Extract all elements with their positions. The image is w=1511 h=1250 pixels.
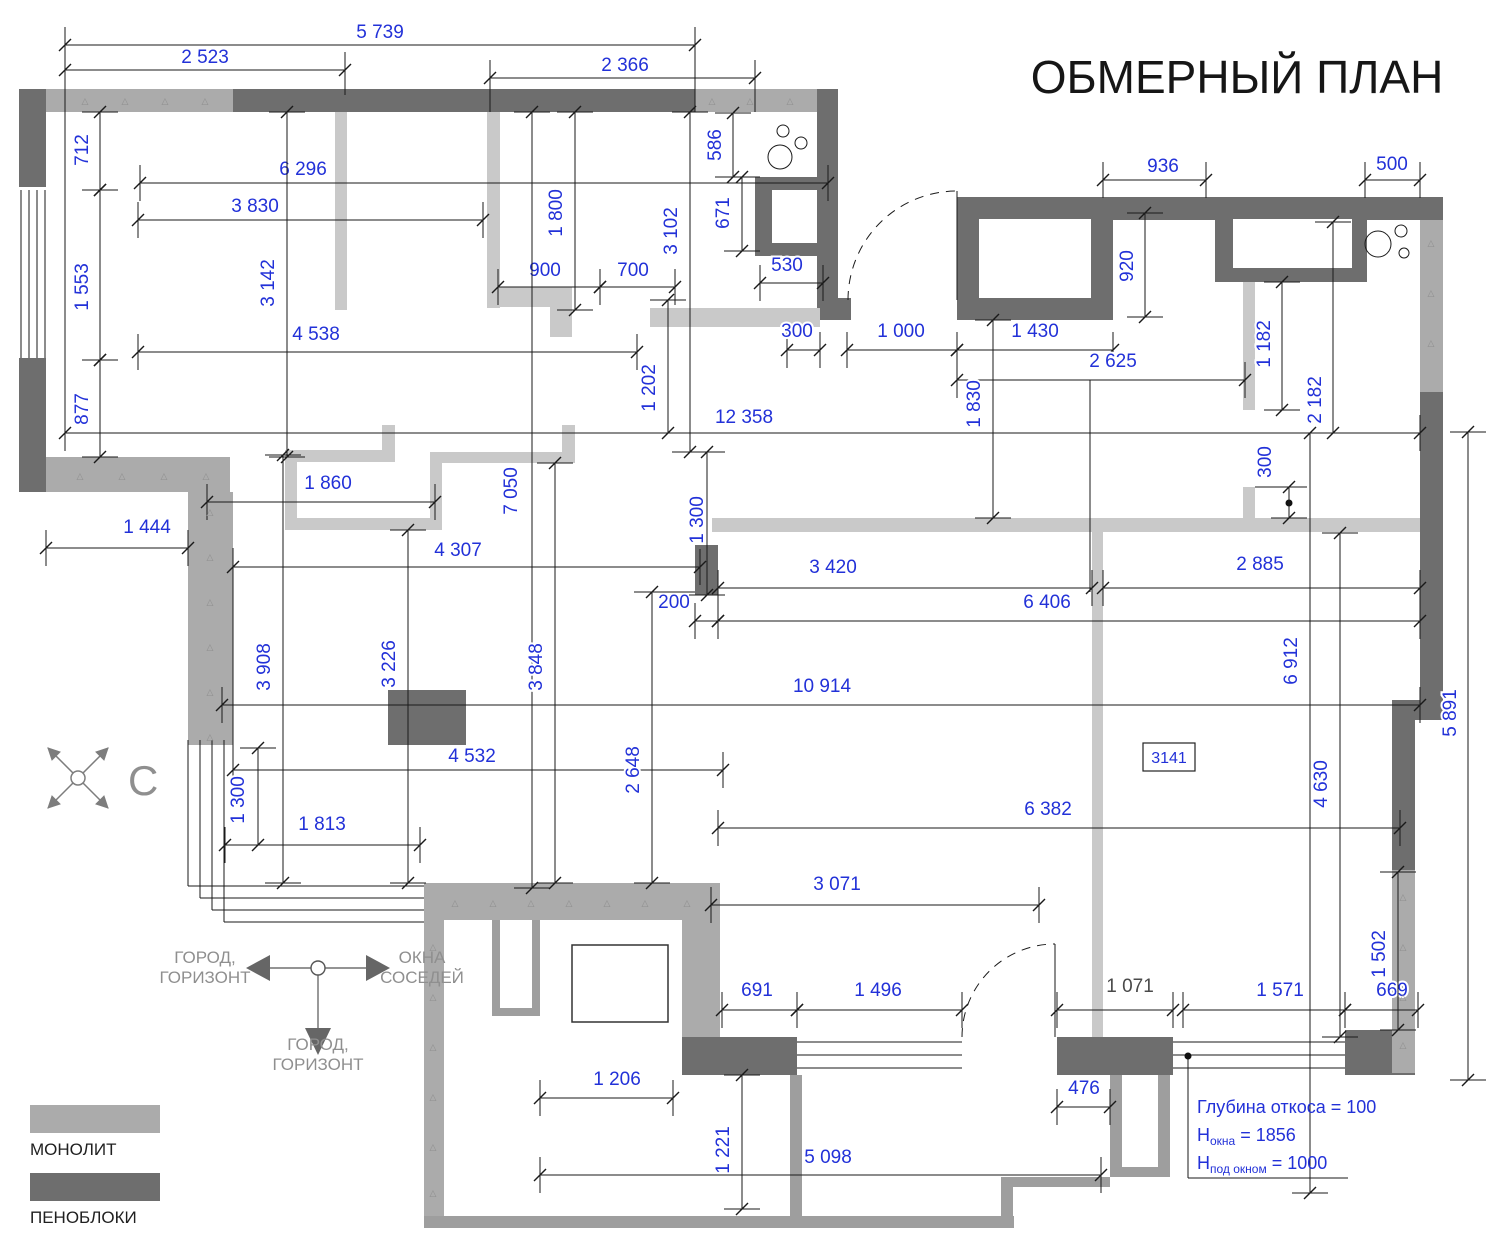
dimension: 1 571	[1177, 980, 1351, 1028]
dimension: 4 307	[227, 540, 706, 585]
dimension-label: 530	[771, 255, 803, 276]
sink-icon	[777, 125, 789, 137]
dimension-label: 12 358	[715, 407, 773, 428]
city-horizon-left-label: ГОРОД,	[174, 948, 236, 967]
dimension: 1 813	[219, 814, 426, 863]
dimension: 1 800	[546, 106, 593, 316]
dimension: 2 625	[951, 351, 1251, 398]
neighbor-window-shaft	[572, 945, 668, 1022]
note-line: Глубина откоса = 100	[1197, 1097, 1376, 1117]
dimension: 1 300	[228, 742, 276, 851]
dimension-label: 2 523	[181, 47, 229, 68]
dimension: 5 891	[1440, 426, 1486, 1086]
svg-text:ГОРИЗОНТ: ГОРИЗОНТ	[160, 968, 251, 987]
dimension: 586	[705, 107, 751, 183]
svg-text:ГОРИЗОНТ: ГОРИЗОНТ	[273, 1055, 364, 1074]
dimension-label: 1 860	[304, 473, 352, 494]
hatch-triangle-icon: △	[207, 733, 214, 743]
dimension-label: 1 206	[593, 1069, 641, 1090]
hatch-triangle-icon: △	[162, 97, 169, 107]
hatch-triangle-icon: △	[709, 97, 716, 107]
dimension-label: 300	[781, 321, 813, 342]
balcony-door-arc	[962, 944, 1055, 1037]
dimension-label: 1 071	[1106, 976, 1154, 997]
hatch-triangle-icon: △	[1428, 339, 1435, 349]
hatch-triangle-icon: △	[430, 1093, 437, 1103]
dimension-label: 2 885	[1236, 554, 1284, 575]
entry-door-arc	[848, 191, 957, 300]
dimension-label: 3 908	[254, 643, 275, 691]
page-title: ОБМЕРНЫЙ ПЛАН	[1031, 51, 1444, 103]
dimension-label: 2 366	[601, 55, 649, 76]
dimension-label: 4 307	[434, 540, 482, 561]
dimension: 12 358	[59, 407, 1426, 451]
dimension-label: 936	[1147, 156, 1179, 177]
dimension: 712	[72, 106, 118, 196]
hatch-triangle-icon: △	[207, 643, 214, 653]
dimension-label: 586	[705, 129, 726, 161]
legend-foamblock-label: ПЕНОБЛОКИ	[30, 1208, 137, 1227]
dimension: 6 382	[712, 799, 1406, 846]
note-leader-dot	[1185, 1053, 1192, 1060]
dimension-label: 691	[741, 980, 773, 1001]
dimension-label: 700	[617, 260, 649, 281]
sink-icon	[1365, 231, 1391, 257]
dimension-label: 671	[713, 197, 734, 229]
dimension: 1 444	[40, 517, 194, 566]
dimension-label: 1 444	[123, 517, 171, 538]
dimension: 1 496	[791, 980, 968, 1028]
window-notes: Глубина откоса = 100Нокна = 1856Нпод окн…	[1197, 1097, 1376, 1176]
north-label: С	[128, 757, 158, 804]
hatch-triangle-icon: △	[452, 899, 459, 909]
hatch-triangle-icon: △	[122, 97, 129, 107]
dimension-label: 1 202	[639, 364, 660, 412]
hatch-triangle-icon: △	[119, 472, 126, 482]
hatch-triangle-icon: △	[82, 97, 89, 107]
dimension: 920	[1117, 207, 1163, 323]
svg-text:СОСЕДЕЙ: СОСЕДЕЙ	[380, 968, 464, 987]
hatch-triangle-icon: △	[1428, 239, 1435, 249]
dimension: 1 000	[841, 321, 963, 368]
dimension: 1 830	[964, 314, 1011, 524]
room-tag: 3141	[1143, 743, 1195, 771]
dimension-label: 920	[1117, 250, 1138, 282]
dimension-label: 4 532	[448, 746, 496, 767]
dimension-label: 3 420	[809, 557, 857, 578]
measurement-plan-page: 5 7392 5232 3666 2963 830936500900700530…	[0, 0, 1511, 1250]
dimension-label: 5 098	[804, 1147, 852, 1168]
dimension: 1 071	[1051, 976, 1179, 1028]
hatch-triangle-icon: △	[203, 472, 210, 482]
dimension: 6 912	[1281, 427, 1328, 1199]
dimension-label: 5 739	[356, 22, 404, 43]
dimension: 2 885	[1097, 554, 1426, 606]
dimension: 2 523	[59, 47, 351, 88]
dimension: 936	[1097, 156, 1212, 198]
compass-icon	[48, 748, 108, 808]
dimension-label: 500	[1376, 154, 1408, 175]
dimension: 3 071	[705, 874, 1045, 923]
dimension-label: 10 914	[793, 676, 852, 697]
sink-icon	[1395, 225, 1407, 237]
dimension-label: 1 496	[854, 980, 902, 1001]
dimension: 4 532	[227, 746, 729, 788]
dimension-label: 3 071	[813, 874, 861, 895]
floor-plan-drawing: 5 7392 5232 3666 2963 830936500900700530…	[0, 0, 1511, 1250]
hatch-triangle-icon: △	[430, 1043, 437, 1053]
dimension-label: 1 300	[687, 496, 708, 544]
hatch-triangle-icon: △	[207, 508, 214, 518]
dimension-label: 1 553	[72, 263, 93, 311]
dimension-label: 4 538	[292, 324, 340, 345]
dimension-label: 1 000	[877, 321, 925, 342]
dimension-label: 6 912	[1281, 637, 1302, 685]
hatch-triangle-icon: △	[787, 97, 794, 107]
dimension: 7 050	[501, 106, 550, 894]
note-line: Нпод окном = 1000	[1197, 1153, 1327, 1176]
dimension-label: 1 571	[1256, 980, 1304, 1001]
dimension: 1 206	[534, 1069, 679, 1116]
dimension: 4 630	[1311, 527, 1358, 1043]
legend-monolith-label: МОНОЛИТ	[30, 1140, 116, 1159]
city-horizon-bottom-label: ГОРОД,	[287, 1035, 349, 1054]
legend-monolith-swatch	[30, 1105, 160, 1133]
hatch-triangle-icon: △	[528, 899, 535, 909]
neighbors-windows-label: ОКНА	[399, 948, 446, 967]
dimension: 1 182	[1254, 276, 1300, 416]
dimension: 6 296	[134, 159, 834, 201]
hatch-triangle-icon: △	[490, 899, 497, 909]
dimension: 877	[72, 354, 118, 463]
hatch-triangle-icon: △	[207, 598, 214, 608]
dimension-label: 300	[1255, 446, 1276, 478]
dimension-label: 877	[72, 393, 93, 425]
dimension: 3 848	[526, 457, 573, 889]
hatch-triangle-icon: △	[202, 97, 209, 107]
hatch-triangle-icon: △	[77, 472, 84, 482]
dimension-label: 7 050	[501, 467, 522, 515]
dimension-label: 712	[72, 134, 93, 166]
dimension-label: 1 830	[964, 380, 985, 428]
dimension-label: 1 502	[1369, 930, 1390, 978]
dimension-label: 2 625	[1089, 351, 1137, 372]
sink-icon	[795, 137, 807, 149]
dimension: 1 860	[201, 473, 441, 520]
note-line: Нокна = 1856	[1197, 1125, 1296, 1148]
hatch-triangle-icon: △	[566, 899, 573, 909]
hatch-triangle-icon: △	[1400, 993, 1407, 1003]
hatch-triangle-icon: △	[604, 899, 611, 909]
dimension: 671	[713, 171, 760, 257]
dimension: 476	[1051, 1078, 1116, 1125]
dimension-label: 4 630	[1311, 760, 1332, 808]
dimension: 2 648	[623, 586, 670, 889]
dimension: 1 553	[72, 184, 118, 366]
dimension-label: 3 102	[661, 207, 682, 255]
hatch-triangle-icon: △	[430, 1189, 437, 1199]
hatch-triangle-icon: △	[1400, 1041, 1407, 1051]
dimension: 500	[1359, 154, 1426, 198]
dimension-label: 476	[1068, 1078, 1100, 1099]
dimension-label: 2 182	[1305, 376, 1326, 424]
dimension-label: 3 830	[231, 196, 279, 217]
hatch-triangle-icon: △	[642, 899, 649, 909]
hatch-triangle-icon: △	[1428, 289, 1435, 299]
dimension: 300	[1255, 446, 1307, 524]
dimension-label: 1 813	[298, 814, 346, 835]
hatch-triangle-icon: △	[1400, 893, 1407, 903]
dimension: 6 406	[712, 592, 1426, 639]
dimension-label: 3 226	[379, 640, 400, 688]
dimension: 691	[716, 980, 803, 1028]
dimension-label: 6 296	[279, 159, 327, 180]
dimension-label: 6 382	[1024, 799, 1072, 820]
dimension-label: 3 142	[258, 259, 279, 307]
dimension-label: 1 221	[713, 1126, 734, 1174]
dimension-label: 5 891	[1440, 689, 1461, 737]
dimension-label: 200	[658, 592, 690, 613]
dimension: 200	[658, 592, 724, 639]
dimension: 3 830	[132, 196, 489, 238]
dimension-label: 1 182	[1254, 320, 1275, 368]
hatch-triangle-icon: △	[161, 472, 168, 482]
svg-text:3141: 3141	[1151, 750, 1187, 767]
dimension-label: 6 406	[1023, 592, 1071, 613]
hatch-triangle-icon: △	[430, 1143, 437, 1153]
dimension-label: 1 300	[228, 776, 249, 824]
dimension-label: 2 648	[623, 746, 644, 794]
hatch-triangle-icon: △	[207, 553, 214, 563]
hatch-triangle-icon: △	[430, 993, 437, 1003]
dimension-label: 1 430	[1011, 321, 1059, 342]
dimension-label: 1 800	[546, 189, 567, 237]
dimension: 300	[781, 321, 826, 368]
dimension-label: 3 848	[526, 643, 547, 691]
sink-icon	[768, 145, 792, 169]
dimension: 700	[594, 260, 681, 305]
hatch-triangle-icon: △	[207, 688, 214, 698]
hatch-triangle-icon: △	[684, 899, 691, 909]
dimension: 1 221	[713, 1069, 760, 1215]
sink-icon	[1399, 248, 1409, 258]
hatch-triangle-icon: △	[1400, 943, 1407, 953]
legend-foamblock-swatch	[30, 1173, 160, 1201]
dimension-label: 900	[529, 260, 561, 281]
hatch-triangle-icon: △	[747, 97, 754, 107]
